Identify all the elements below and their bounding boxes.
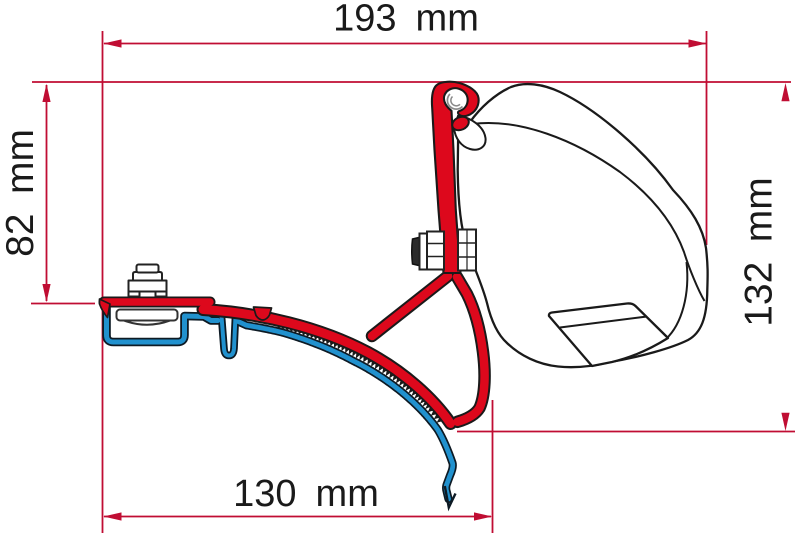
svg-text:130 mm: 130 mm [233, 473, 379, 515]
svg-text:132 mm: 132 mm [738, 177, 781, 327]
svg-text:82 mm: 82 mm [0, 129, 42, 257]
svg-text:193 mm: 193 mm [333, 0, 479, 40]
